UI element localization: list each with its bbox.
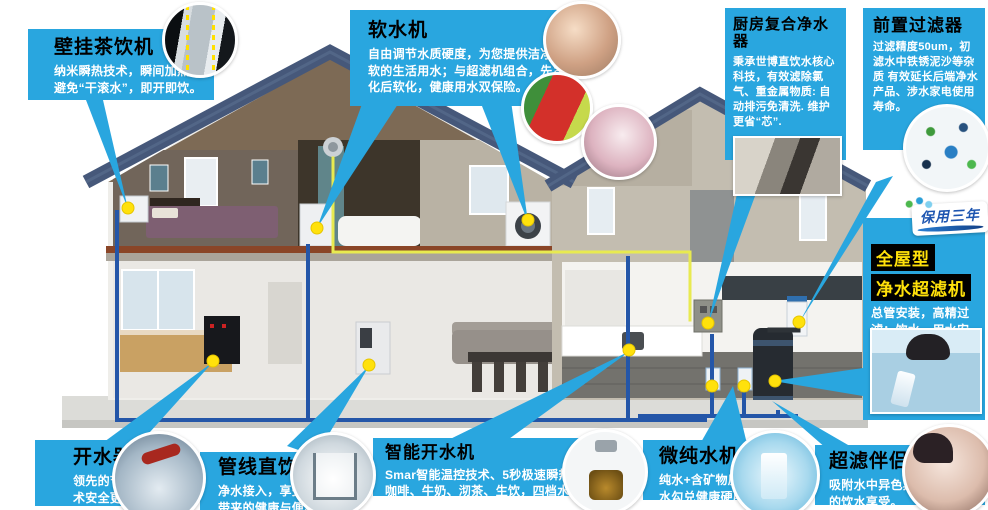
callout-body: 秉承世博直饮水核心科技，有效滤除氯气、重金属物质: 自动排污免清洗. 维护更省“…	[733, 55, 838, 131]
warranty-badge: 保用三年	[911, 201, 988, 236]
callout-kitchen-purifier: 厨房复合净水器 秉承世博直饮水核心科技，有效滤除氯气、重金属物质: 自动排污免清…	[725, 8, 846, 160]
photo-product-closeup	[162, 2, 238, 78]
callout-title: 厨房复合净水器	[733, 16, 838, 51]
photo-kitchen-scene	[733, 136, 842, 196]
callout-body: 过滤精度50um，初滤水中铁锈泥沙等杂质 有效延长后端净水产品、涉水家电使用寿命…	[873, 40, 979, 116]
callout-whole-house-uf: 保用三年 全屋型 净水超滤机 总管安装，高精过滤；饮水、用水安全一步解决。	[863, 218, 985, 420]
callout-title: 软水机	[368, 20, 568, 42]
photo-filter-parts	[903, 104, 988, 192]
callout-title-line2: 净水超滤机	[871, 274, 971, 301]
callout-title: 前置过滤器	[873, 16, 979, 36]
photo-tea-pouring	[562, 429, 648, 510]
photo-ice-water-glass	[290, 432, 376, 510]
photo-water-splash	[730, 430, 820, 510]
photo-woman-with-glass	[902, 424, 988, 510]
photo-man-drinking	[870, 328, 982, 414]
photo-woman-showering	[543, 1, 621, 79]
warranty-badge-text: 保用三年	[911, 201, 988, 231]
dining-table	[468, 352, 564, 362]
infographic-stage: 壁挂茶饮机 纳米瞬热技术，瞬间加热，避免“干滚水”，即开即饮。 软水机 自由调节…	[0, 0, 988, 510]
callout-title-line1: 全屋型	[871, 244, 935, 271]
photo-woman-washing	[581, 104, 657, 180]
ground-floor-left	[113, 261, 564, 398]
